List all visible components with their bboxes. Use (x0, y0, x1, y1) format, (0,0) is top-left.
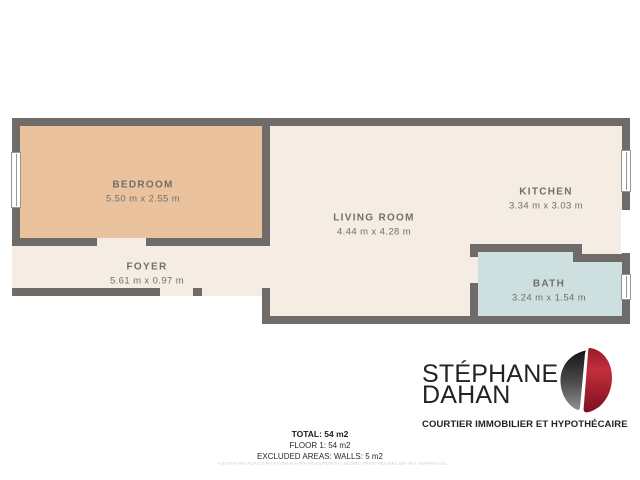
summary-floor: FLOOR 1: 54 m2 (170, 441, 470, 450)
wall-bedroom-bottom-right (146, 238, 270, 246)
wall-bath-top (470, 244, 582, 252)
wall-bath-top-right (573, 254, 622, 262)
room-label-living-room: LIVING ROOM 4.44 m x 4.28 m (333, 213, 415, 237)
wall-livingroom-left-lower (262, 288, 270, 316)
kitchen-name: KITCHEN (509, 187, 583, 197)
bath-name: BATH (512, 279, 586, 289)
summary-excluded-areas: EXCLUDED AREAS: WALLS: 5 m2 (170, 452, 470, 461)
dahan-logo-mark-icon (556, 347, 616, 413)
kitchen-door-opening (621, 210, 631, 253)
wall-bath-left-upper (470, 244, 478, 257)
wall-bath-left-lower (470, 283, 478, 316)
disclaimer-text: FLOOR PLAN CREATED WITH CUBICASA APP, ME… (218, 462, 422, 466)
room-label-bedroom: BEDROOM 5.50 m x 2.55 m (106, 180, 180, 204)
wall-foyer-stub (193, 288, 202, 296)
foyer-dimensions: 5.61 m x 0.97 m (110, 276, 184, 286)
room-label-bath: BATH 3.24 m x 1.54 m (512, 279, 586, 303)
brand-name: STÉPHANE DAHAN (422, 364, 558, 406)
wall-bedroom-right (262, 126, 270, 246)
room-label-foyer: FOYER 5.61 m x 0.97 m (110, 262, 184, 286)
kitchen-dimensions: 3.34 m x 3.03 m (509, 201, 583, 211)
bath-dimensions: 3.24 m x 1.54 m (512, 293, 586, 303)
bedroom-window-symbol (11, 152, 21, 208)
wall-bedroom-bottom-left (12, 238, 97, 246)
wall-bottom (262, 316, 630, 324)
wall-foyer-bottom (12, 288, 160, 296)
wall-top (12, 118, 630, 126)
bedroom-dimensions: 5.50 m x 2.55 m (106, 194, 180, 204)
room-label-kitchen: KITCHEN 3.34 m x 3.03 m (509, 187, 583, 211)
area-summary: TOTAL: 54 m2 FLOOR 1: 54 m2 EXCLUDED ARE… (170, 429, 470, 461)
kitchen-window-symbol (621, 150, 631, 192)
living-room-name: LIVING ROOM (333, 213, 415, 223)
bath-window-symbol (621, 274, 631, 300)
summary-total: TOTAL: 54 m2 (170, 429, 470, 439)
foyer-name: FOYER (110, 262, 184, 272)
bedroom-name: BEDROOM (106, 180, 180, 190)
living-room-dimensions: 4.44 m x 4.28 m (333, 227, 415, 237)
floor-plan-page: BEDROOM 5.50 m x 2.55 m LIVING ROOM 4.44… (0, 0, 640, 480)
brand-name-line2: DAHAN (422, 385, 558, 406)
